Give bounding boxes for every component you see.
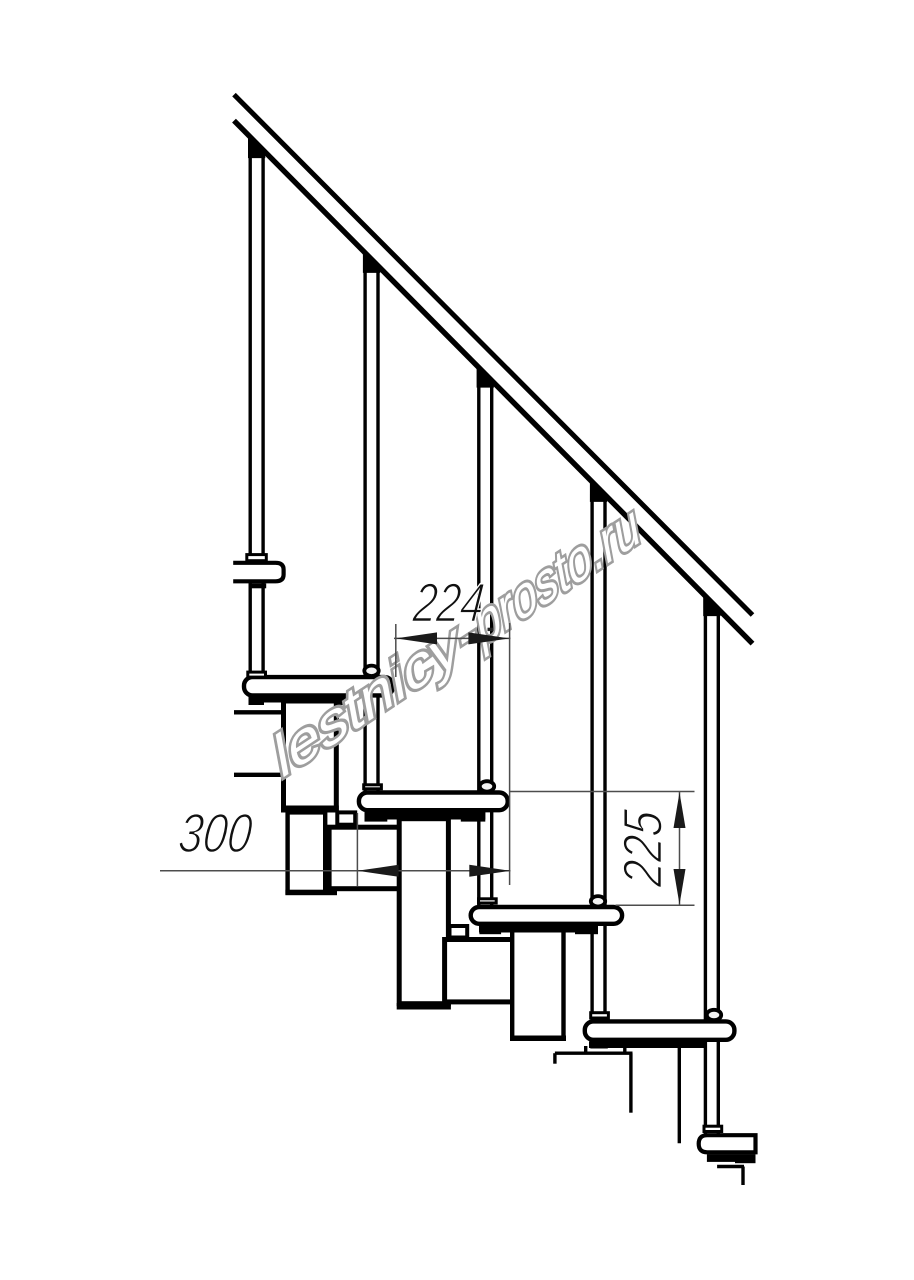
svg-text:300: 300 [176, 802, 256, 864]
svg-text:225: 225 [612, 807, 674, 890]
svg-text:224: 224 [410, 572, 487, 634]
